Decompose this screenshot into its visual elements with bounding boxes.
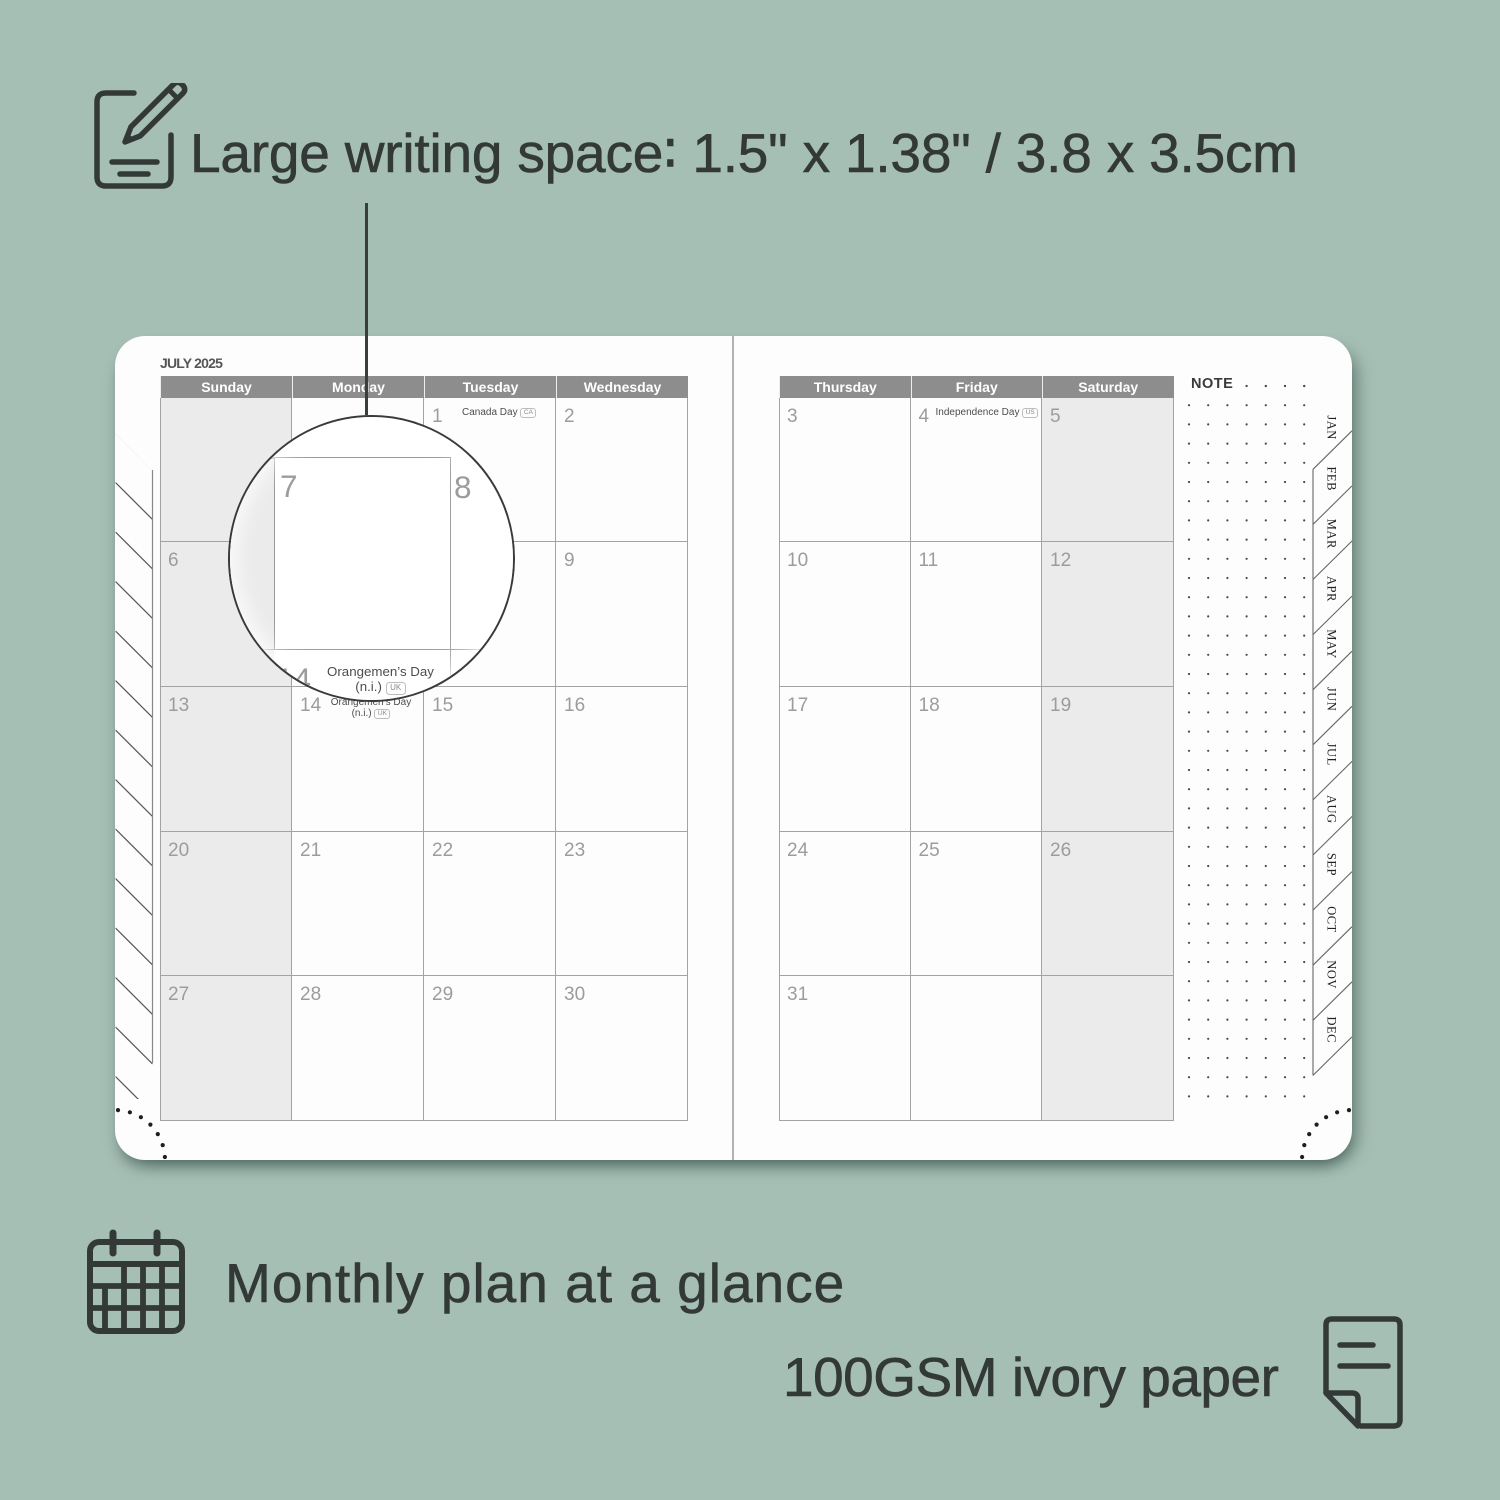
svg-text:NOV: NOV	[1325, 960, 1339, 989]
svg-text:JAN: JAN	[1325, 415, 1339, 439]
svg-text:JUN: JUN	[1325, 687, 1339, 711]
svg-text:MAR: MAR	[1325, 519, 1339, 549]
svg-text:APR: APR	[1325, 576, 1339, 602]
svg-text:DEC: DEC	[1325, 1016, 1339, 1042]
svg-text:OCT: OCT	[1325, 906, 1339, 933]
svg-text:MAY: MAY	[1325, 629, 1339, 659]
svg-text:AUG: AUG	[1325, 795, 1339, 824]
svg-text:SEP: SEP	[1325, 853, 1339, 876]
svg-text:JUL: JUL	[1325, 743, 1339, 766]
svg-text:FEB: FEB	[1325, 466, 1339, 490]
